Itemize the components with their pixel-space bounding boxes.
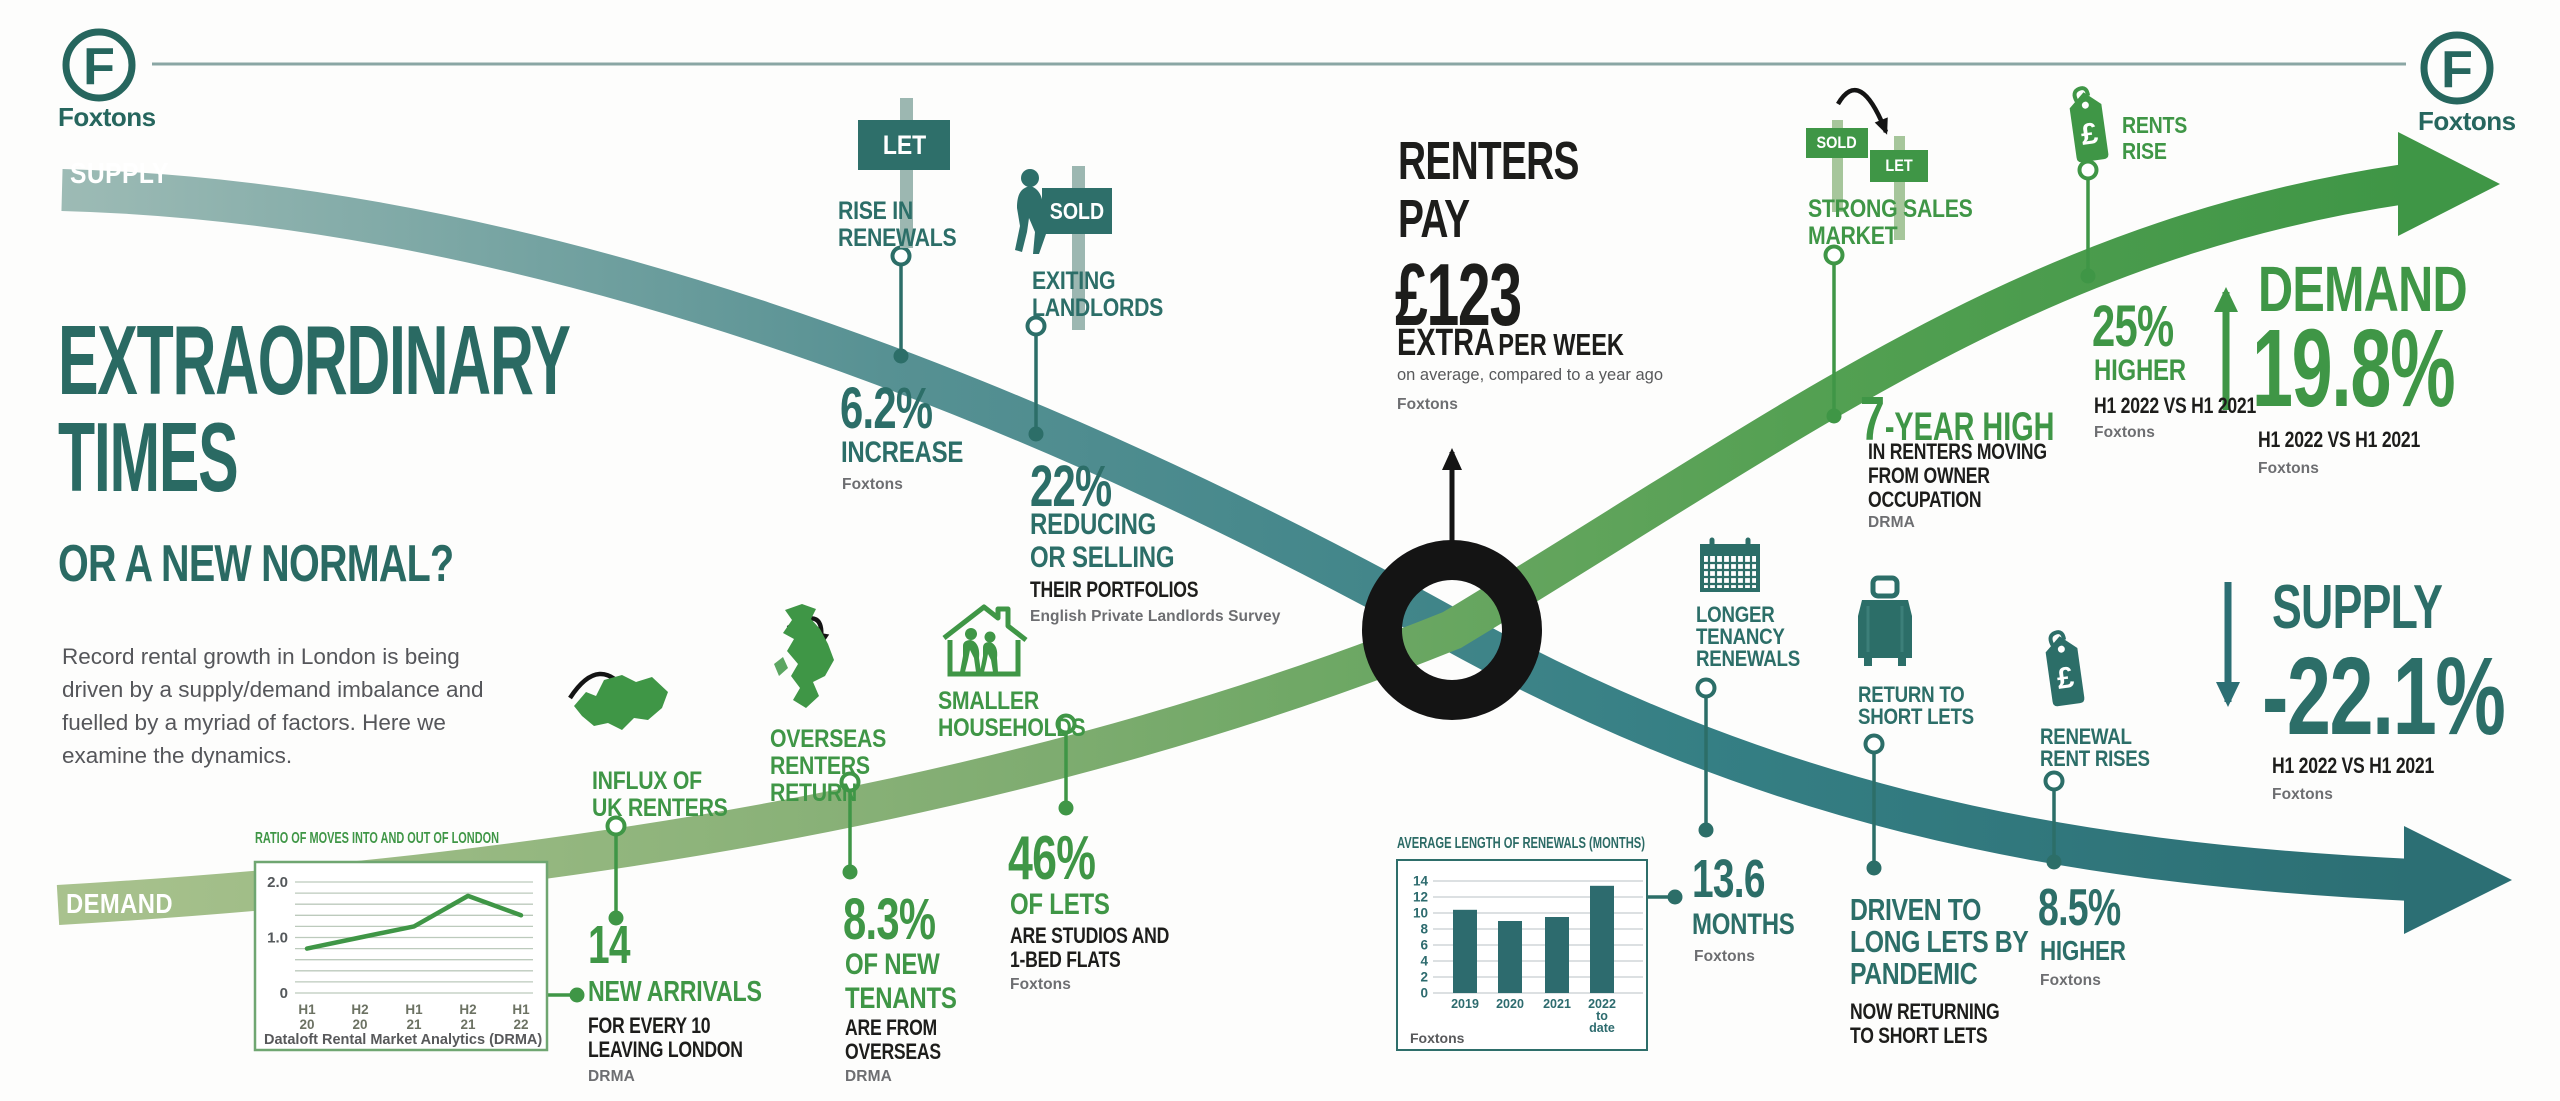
supply-change-source: Foxtons: [2272, 786, 2333, 804]
svg-text:Foxtons: Foxtons: [1410, 1030, 1465, 1046]
smaller-households-unit: OF LETS: [1010, 888, 1110, 921]
demand-change-detail: H1 2022 VS H1 2021: [2258, 428, 2420, 452]
renewal-length-chart: AVERAGE LENGTH OF RENEWALS (MONTHS)02468…: [1390, 828, 1690, 1063]
svg-text:0: 0: [280, 985, 288, 1002]
longer-tenancy-source: Foxtons: [1694, 948, 1755, 966]
smaller-households-value: 46%: [1008, 828, 1095, 890]
center-stat-source: Foxtons: [1397, 396, 1458, 414]
strong-sales-source: DRMA: [1868, 514, 1915, 532]
supply-band-label: SUPPLY: [70, 158, 169, 191]
brand-wordmark-left: Foxtons: [58, 102, 156, 133]
rise-in-renewals-source: Foxtons: [842, 476, 903, 494]
svg-text:4: 4: [1420, 954, 1428, 969]
rise-in-renewals-label: RISE IN RENEWALS: [838, 198, 956, 252]
overseas-unit: OF NEW TENANTS: [845, 948, 957, 1016]
strong-sales-label: STRONG SALES MARKET: [1808, 196, 1973, 250]
renewal-rent-source: Foxtons: [2040, 972, 2101, 990]
center-stat-extra-line: EXTRA PER WEEK: [1397, 322, 1624, 365]
rents-rise-source: Foxtons: [2094, 424, 2155, 442]
center-stat-line2: PAY: [1398, 188, 1469, 250]
demand-change-source: Foxtons: [2258, 460, 2319, 478]
strong-sales-detail: IN RENTERS MOVING FROM OWNER OCCUPATION: [1868, 440, 2047, 512]
svg-text:12: 12: [1413, 890, 1428, 905]
rise-in-renewals-value: 6.2%: [840, 380, 932, 438]
exiting-landlords-source: English Private Landlords Survey: [1030, 608, 1280, 626]
center-stat-line1: RENTERS: [1398, 130, 1579, 192]
intro-paragraph: Record rental growth in London is being …: [62, 640, 484, 772]
sign-plate: LET: [1870, 150, 1928, 182]
overseas-label: OVERSEAS RENTERS RETURN: [770, 726, 886, 807]
london-map-icon: [574, 675, 668, 730]
page-title: EXTRAORDINARY TIMES: [58, 312, 570, 506]
smaller-household-icon: [944, 607, 1026, 674]
influx-uk-source: DRMA: [588, 1068, 635, 1086]
exiting-landlords-label: EXITING LANDLORDS: [1032, 268, 1163, 322]
svg-text:F: F: [83, 38, 115, 96]
rents-rise-value: 25%: [2092, 298, 2173, 356]
influx-uk-detail: FOR EVERY 10 LEAVING LONDON: [588, 1014, 743, 1061]
svg-text:2021: 2021: [1543, 997, 1571, 1011]
svg-text:14: 14: [1413, 874, 1429, 889]
svg-text:8: 8: [1420, 922, 1428, 937]
svg-text:6: 6: [1420, 938, 1428, 953]
supply-change-label: SUPPLY: [2272, 572, 2442, 643]
sign-text: SOLD: [1050, 198, 1104, 225]
svg-text:2020: 2020: [1496, 997, 1524, 1011]
suitcase-icon: [1858, 578, 1912, 666]
rents-rise-detail: H1 2022 VS H1 2021: [2094, 394, 2256, 418]
rise-in-renewals-unit: INCREASE: [841, 436, 963, 469]
smaller-households-source: Foxtons: [1010, 976, 1071, 994]
sign-plate: SOLD: [1806, 128, 1868, 158]
calendar-icon: [1702, 540, 1758, 590]
renewal-rent-value: 8.5%: [2038, 882, 2120, 934]
svg-text:Dataloft Rental Market Analyti: Dataloft Rental Market Analytics (DRMA): [264, 1032, 542, 1048]
demand-change-value: 19.8%: [2252, 314, 2454, 424]
longer-tenancy-unit: MONTHS: [1692, 908, 1795, 941]
sign-text: SOLD: [1817, 133, 1857, 153]
rents-rise-unit: HIGHER: [2094, 354, 2186, 387]
uk-map-icon: [774, 604, 834, 708]
svg-text:H220: H220: [351, 1002, 368, 1032]
price-tag-icon-teal: £: [2043, 630, 2085, 707]
overseas-value: 8.3%: [843, 891, 935, 949]
return-short-lets-detail: NOW RETURNING TO SHORT LETS: [1850, 1000, 1999, 1047]
smaller-households-label: SMALLER HOUSEHOLDS: [938, 688, 1085, 742]
center-stat-per: PER WEEK: [1498, 327, 1624, 362]
return-short-lets-value: DRIVEN TO LONG LETS BY PANDEMIC: [1850, 894, 2028, 990]
supply-change-detail: H1 2022 VS H1 2021: [2272, 754, 2434, 778]
return-short-lets-label: RETURN TO SHORT LETS: [1858, 684, 1974, 728]
svg-text:RATIO OF MOVES INTO AND OUT OF: RATIO OF MOVES INTO AND OUT OF LONDON: [255, 830, 499, 847]
influx-uk-value: 14: [588, 918, 630, 972]
supply-arrowhead: [2404, 826, 2512, 934]
price-tag-icon-green: £: [2067, 86, 2109, 163]
longer-tenancy-label: LONGER TENANCY RENEWALS: [1696, 604, 1800, 670]
svg-text:H120: H120: [298, 1002, 316, 1032]
exiting-landlords-detail: THEIR PORTFOLIOS: [1030, 578, 1198, 602]
sign-plate: LET: [858, 120, 950, 170]
influx-uk-label: INFLUX OF UK RENTERS: [592, 768, 728, 822]
renewal-rent-unit: HIGHER: [2040, 934, 2126, 967]
svg-text:H122: H122: [512, 1002, 530, 1032]
svg-text:AVERAGE LENGTH OF RENEWALS (MO: AVERAGE LENGTH OF RENEWALS (MONTHS): [1397, 835, 1645, 852]
page-subtitle: OR A NEW NORMAL?: [58, 534, 453, 594]
connector-influx-uk: [608, 818, 625, 926]
supply-change-value: -22.1%: [2262, 642, 2504, 752]
center-stat-note: on average, compared to a year ago: [1397, 366, 1663, 385]
foxtons-logo-left: F: [66, 32, 132, 98]
svg-text:1.0: 1.0: [267, 930, 288, 947]
rents-rise-label: RENTS RISE: [2122, 112, 2187, 164]
demand-band-label: DEMAND: [66, 888, 173, 920]
ratio-moves-chart: RATIO OF MOVES INTO AND OUT OF LONDON01.…: [250, 826, 550, 1076]
demand-arrowhead: [2398, 132, 2500, 236]
svg-text:2: 2: [1420, 970, 1428, 985]
center-stat-extra: EXTRA: [1397, 322, 1495, 364]
brand-wordmark-right: Foxtons: [2418, 106, 2516, 137]
smaller-households-detail: ARE STUDIOS AND 1-BED FLATS: [1010, 924, 1169, 971]
sign-text: LET: [1885, 156, 1912, 176]
overseas-source: DRMA: [845, 1068, 892, 1086]
svg-text:0: 0: [1420, 986, 1428, 1001]
connector-rise-in-renewals: [893, 248, 910, 364]
svg-text:2.0: 2.0: [267, 874, 288, 891]
svg-text:F: F: [2441, 41, 2473, 99]
svg-text:2019: 2019: [1451, 997, 1479, 1011]
renewal-rent-label: RENEWAL RENT RISES: [2040, 726, 2150, 770]
foxtons-logo-right: F: [2424, 35, 2490, 101]
influx-uk-unit: NEW ARRIVALS: [588, 976, 762, 1009]
connector-line-chart-callout: [548, 988, 585, 1003]
sign-text: LET: [882, 130, 925, 161]
svg-text:H221: H221: [459, 1002, 476, 1032]
svg-text:H121: H121: [405, 1002, 423, 1032]
svg-text:10: 10: [1413, 906, 1428, 921]
longer-tenancy-value: 13.6: [1692, 852, 1765, 906]
infographic-canvas: F F: [0, 0, 2560, 1101]
sign-plate: SOLD: [1042, 188, 1112, 234]
overseas-detail: ARE FROM OVERSEAS: [845, 1016, 941, 1063]
exiting-landlords-unit: REDUCING OR SELLING: [1030, 508, 1174, 574]
